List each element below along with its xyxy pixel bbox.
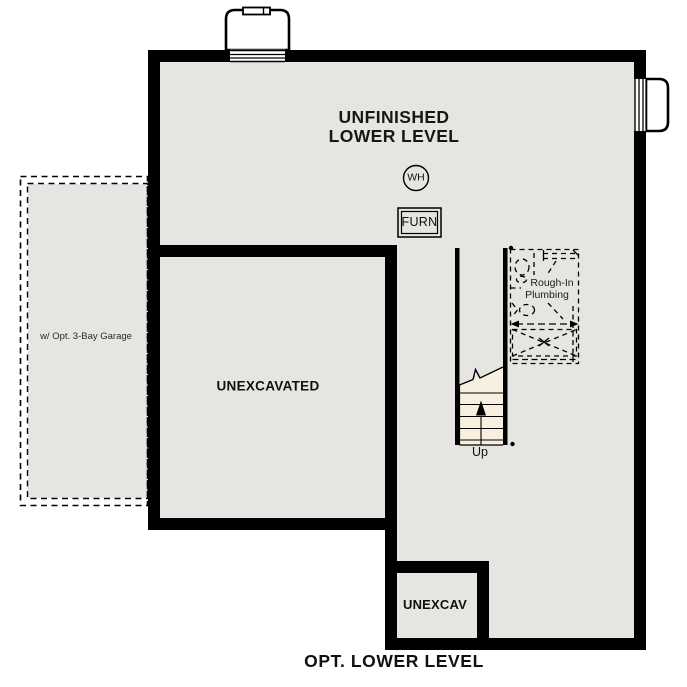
plumbing-corner-dot [509,246,513,250]
window-well-top [226,8,289,63]
plumbing-label-line2: Plumbing [525,289,569,301]
wall-unexcavated-bottom [148,518,397,530]
water-heater-label: WH [407,171,425,184]
window-right-glass [634,79,647,131]
window-top-glass [230,50,285,63]
stair-wall-left [455,248,460,445]
plumbing-label-line1: Rough-In [530,277,573,289]
room-label-unfinished-line2: LOWER LEVEL [329,126,460,148]
garage-label: w/ Opt. 3-Bay Garage [40,331,132,343]
window-well-right-outline [646,79,668,131]
window-well-top-outline [226,10,289,50]
plan-title: OPT. LOWER LEVEL [304,651,484,673]
wall-right [634,50,646,650]
floor-upper-room [154,56,640,251]
window-well-top-ladder-icon [243,8,270,15]
stairs-up-label: Up [472,445,488,461]
wall-unexcavated-top [148,245,397,257]
room-label-unexcav: UNEXCAV [403,597,467,613]
wall-top [148,50,646,62]
wall-left [148,50,160,530]
floor-plan: UNFINISHED LOWER LEVEL WH FURN w/ Opt. 3… [0,0,687,687]
floor-plan-drawing [0,0,687,687]
room-label-unexcavated: UNEXCAVATED [216,379,319,396]
stair-newel-dot [510,442,514,446]
wall-unexcav-box-right [477,561,489,650]
furnace-label: FURN [402,215,438,231]
wall-middle-vertical [385,245,397,650]
window-well-right [634,79,668,131]
wall-bottom [385,638,646,650]
stair-wall-right [503,248,508,445]
wall-unexcav-box-top [385,561,489,573]
